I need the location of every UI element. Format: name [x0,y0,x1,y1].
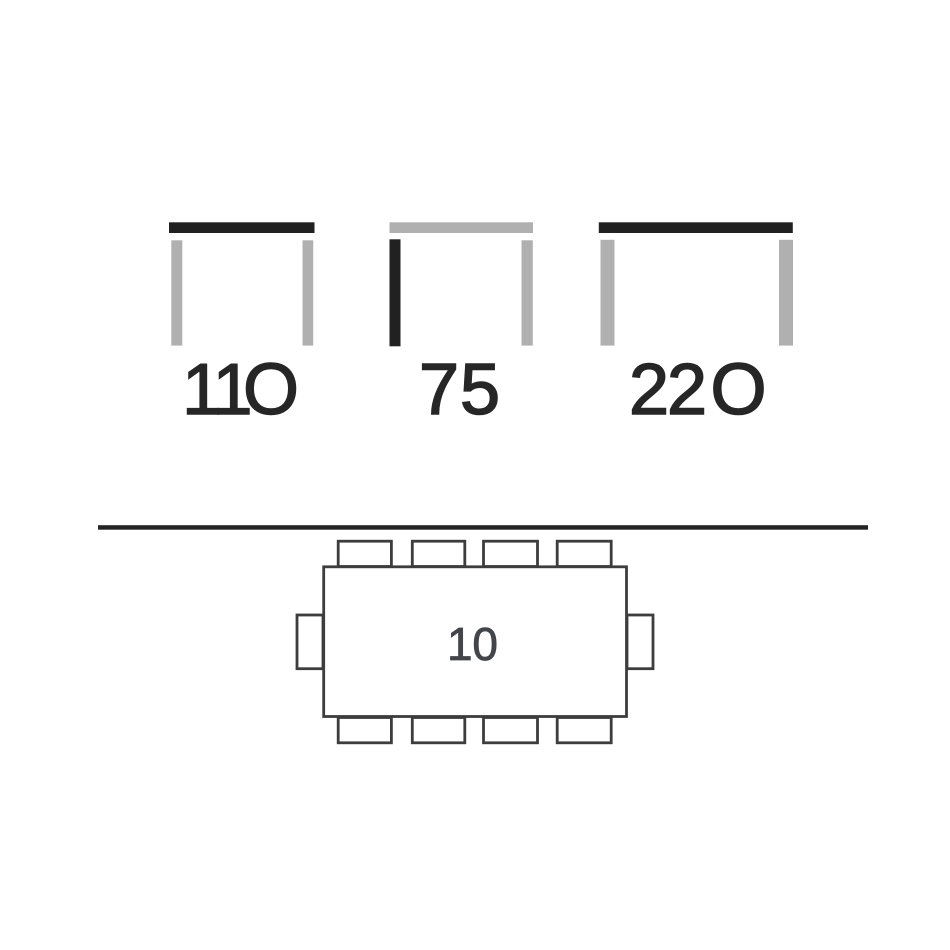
svg-text:10: 10 [447,618,498,670]
svg-text:22O: 22O [629,350,767,430]
svg-text:75: 75 [419,350,500,430]
svg-text:11O: 11O [182,350,299,430]
